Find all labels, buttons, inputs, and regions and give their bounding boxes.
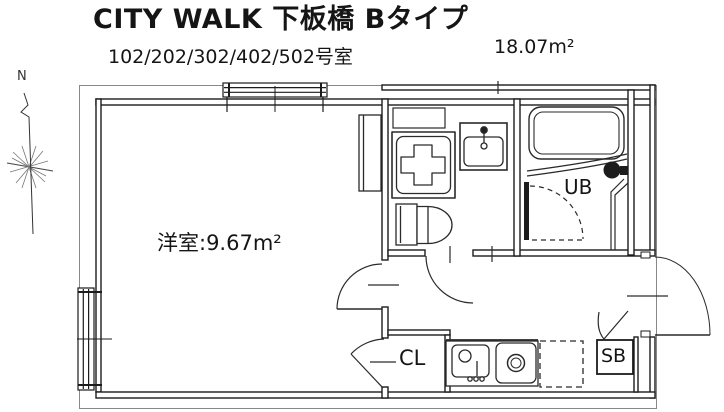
compass-north-label: N [17,70,27,83]
bathtub [529,107,624,159]
window-left [77,288,112,390]
stove-burner [496,343,536,383]
north-compass-icon [7,93,53,234]
washer-shelf [393,108,445,128]
closet-label: CL [399,348,425,369]
room-numbers: 102/202/302/402/502号室 [108,48,353,67]
toilet [396,204,452,245]
kitchen-counter [446,340,538,386]
floor-plan: N CITY WALK 下板橋 Bタイプ 102/202/302/402/502… [0,0,724,412]
washbasin [460,123,507,170]
shoe-box-label: SB [601,347,626,366]
total-area: 18.07m² [494,38,575,57]
unit-bath-label: UB [564,177,592,197]
main-room-label: 洋室:9.67m² [157,233,282,254]
kitchen-sink [452,345,489,381]
counter [359,115,381,191]
main-room-door [337,264,399,309]
refrigerator-space [540,341,583,387]
washing-machine-pan [392,132,455,198]
page-title: CITY WALK 下板橋 Bタイプ [93,6,468,33]
entrance-door [598,257,710,339]
bath-faucet [604,162,629,179]
closet-door [351,339,396,388]
window-top [223,83,327,112]
